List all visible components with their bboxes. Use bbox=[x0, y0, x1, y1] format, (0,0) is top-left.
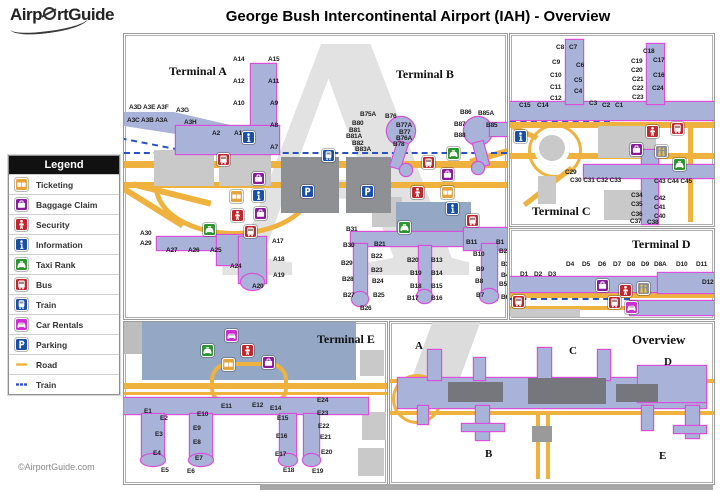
gate-label: A14 bbox=[233, 56, 245, 63]
gate-label: C17 bbox=[653, 57, 665, 64]
gate-label: C43 C44 C45 bbox=[654, 178, 692, 185]
gate-label: B11 bbox=[466, 239, 477, 246]
gate-label: A18 bbox=[273, 256, 285, 263]
gate-label: D4 bbox=[566, 261, 574, 268]
legend-item: Train bbox=[9, 374, 119, 394]
gate-label: D7 bbox=[613, 261, 621, 268]
gate-label: B25 bbox=[373, 292, 385, 299]
gate-label: D10 bbox=[676, 261, 688, 268]
gate-label: C24 bbox=[652, 85, 664, 92]
gate-label: D12 bbox=[702, 279, 714, 286]
bus-icon bbox=[608, 296, 621, 309]
terminal-pier bbox=[428, 350, 441, 380]
terminal-letter: D bbox=[664, 356, 672, 368]
terminal-junction bbox=[400, 164, 412, 176]
terminal-junction bbox=[417, 290, 432, 303]
road-icon bbox=[15, 358, 28, 371]
gate-label: D9 bbox=[641, 261, 649, 268]
gate-label: A17 bbox=[272, 238, 284, 245]
gate-label: B23 bbox=[371, 267, 383, 274]
road-segment bbox=[536, 413, 540, 479]
bus-icon bbox=[15, 278, 28, 291]
baggage-claim-icon bbox=[596, 279, 609, 292]
gate-label: C12 bbox=[550, 95, 562, 102]
gate-label: B87 bbox=[454, 121, 466, 128]
legend-item: Information bbox=[9, 234, 119, 254]
gate-label: B85 bbox=[486, 122, 498, 129]
security-icon bbox=[231, 209, 244, 222]
terminal-letter: C bbox=[569, 345, 577, 357]
building bbox=[360, 350, 384, 376]
terminal-shape bbox=[630, 301, 714, 315]
gate-label: E23 bbox=[317, 410, 328, 417]
gate-label: B10 bbox=[473, 251, 485, 258]
gate-label: B17 bbox=[407, 295, 419, 302]
taxi-icon bbox=[398, 221, 411, 234]
gate-label: B4 bbox=[501, 272, 508, 279]
bus-icon bbox=[671, 122, 684, 135]
legend-item: Train bbox=[9, 294, 119, 314]
gate-label: A8 bbox=[270, 122, 278, 129]
gate-label: C20 bbox=[631, 67, 643, 74]
gate-label: E4 bbox=[153, 450, 161, 457]
gate-label: B78 bbox=[393, 141, 405, 148]
ticketing-icon bbox=[441, 186, 454, 199]
gate-label: C6 bbox=[576, 62, 584, 69]
gate-label: B5 bbox=[499, 281, 507, 288]
legend-item-label: Bus bbox=[36, 280, 52, 290]
gate-label: A1 bbox=[234, 130, 242, 137]
terminal-building bbox=[448, 382, 503, 402]
security-icon bbox=[646, 125, 659, 138]
panel-terminal-e: Terminal E E1E2E3E4E5E6E7E8E9E10E11E12E1… bbox=[123, 321, 388, 485]
terminal-building bbox=[528, 378, 606, 404]
gate-label: E6 bbox=[187, 468, 195, 475]
panel-terminal-a-b: A bbox=[123, 33, 508, 320]
gate-label: A11 bbox=[268, 78, 279, 85]
gate-label: B27 bbox=[343, 292, 355, 299]
gate-label: E19 bbox=[312, 468, 323, 475]
gate-label: E10 bbox=[197, 411, 208, 418]
gate-label: C8 bbox=[556, 44, 564, 51]
gate-label: B21 bbox=[374, 241, 386, 248]
terminal-pier bbox=[538, 348, 551, 380]
legend-item: Taxi Rank bbox=[9, 254, 119, 274]
gate-label: D11 bbox=[696, 261, 707, 268]
gate-label: B83A bbox=[355, 146, 371, 153]
terminal-building bbox=[616, 384, 658, 402]
terminal-c-label: Terminal C bbox=[532, 204, 591, 219]
gate-label: D1 bbox=[520, 271, 528, 278]
gate-label: C7 bbox=[569, 44, 577, 51]
assistance-icon bbox=[655, 145, 668, 158]
train-line bbox=[510, 120, 610, 122]
legend-item-label: Parking bbox=[36, 340, 67, 350]
terminal-pier bbox=[462, 424, 504, 431]
car-rentals-icon bbox=[225, 329, 238, 342]
baggage-claim-icon bbox=[630, 143, 643, 156]
airportguide-logo: AirprtGuide bbox=[10, 5, 114, 25]
legend: Legend Ticketing Baggage Claim Security … bbox=[8, 155, 120, 395]
gate-label: C3 bbox=[589, 100, 597, 107]
gate-label: C35 bbox=[631, 201, 643, 208]
terminal-pier bbox=[476, 406, 489, 440]
building bbox=[358, 448, 384, 476]
legend-item: Baggage Claim bbox=[9, 194, 119, 214]
baggage-claim-icon bbox=[252, 172, 265, 185]
gate-label: B85A bbox=[478, 110, 494, 117]
taxi-icon bbox=[15, 258, 28, 271]
information-icon bbox=[252, 189, 265, 202]
gate-label: C34 bbox=[631, 192, 643, 199]
terminal-junction bbox=[472, 162, 484, 174]
legend-item: Bus bbox=[9, 274, 119, 294]
gate-label: B15 bbox=[431, 283, 443, 290]
gate-label: C15 bbox=[519, 102, 531, 109]
gate-label: D8 bbox=[627, 261, 635, 268]
ticketing-icon bbox=[15, 178, 28, 191]
building bbox=[362, 412, 386, 440]
gate-label: B18 bbox=[410, 283, 422, 290]
gate-label: A20 bbox=[252, 283, 264, 290]
gate-label: B6 bbox=[501, 294, 508, 301]
gate-label: B28 bbox=[342, 276, 354, 283]
gate-label: C18 bbox=[643, 48, 655, 55]
gate-label: B75A bbox=[360, 111, 376, 118]
information-icon bbox=[242, 131, 255, 144]
gate-label: D6 bbox=[598, 261, 606, 268]
security-icon bbox=[619, 284, 632, 297]
parking-icon bbox=[301, 185, 314, 198]
bus-icon bbox=[244, 225, 257, 238]
terminal-a-label: Terminal A bbox=[169, 64, 227, 79]
panel-terminal-c: Terminal C C8C7C9C6C10C5C11C4C12C15C14C3… bbox=[509, 33, 715, 227]
gate-label: B3 bbox=[501, 261, 508, 268]
security-icon bbox=[15, 218, 28, 231]
car-rentals-icon bbox=[625, 301, 638, 314]
legend-item: Security bbox=[9, 214, 119, 234]
panel-overview: Overview ACDBE bbox=[389, 321, 715, 485]
gate-label: C22 bbox=[632, 85, 644, 92]
gate-label: C2 bbox=[602, 102, 610, 109]
information-icon bbox=[446, 202, 459, 215]
gate-label: C14 bbox=[537, 102, 549, 109]
road-segment bbox=[546, 413, 550, 479]
terminal-pier bbox=[418, 406, 428, 424]
legend-item-label: Baggage Claim bbox=[36, 200, 97, 210]
terminal-letter: B bbox=[485, 448, 492, 460]
gate-label: D5 bbox=[582, 261, 590, 268]
gate-label: A9 bbox=[270, 100, 278, 107]
taxi-icon bbox=[201, 344, 214, 357]
gate-label: A7 bbox=[270, 144, 278, 151]
gate-label: A12 bbox=[233, 78, 245, 85]
gate-label: B30 bbox=[343, 242, 355, 249]
baggage-claim-icon bbox=[15, 198, 28, 211]
building bbox=[510, 309, 580, 317]
information-icon bbox=[15, 238, 28, 251]
bus-icon bbox=[512, 295, 525, 308]
gate-label: B86 bbox=[460, 109, 472, 116]
building bbox=[538, 176, 556, 204]
train-line-icon bbox=[15, 378, 28, 391]
parking-icon bbox=[15, 338, 28, 351]
terminal-shape bbox=[176, 126, 279, 154]
terminal-b-label: Terminal B bbox=[396, 67, 454, 82]
gate-label: C30 C31 C32 C33 bbox=[570, 177, 621, 184]
gate-label: A3G bbox=[176, 107, 189, 114]
gate-label: E2 bbox=[160, 415, 168, 422]
gate-label: A2 bbox=[212, 130, 220, 137]
gate-label: B19 bbox=[410, 270, 422, 277]
panel-terminal-d: Terminal D D1D2D3D4D5D6D7D8D9D8AD10D11D1… bbox=[509, 228, 715, 320]
gate-label: B24 bbox=[372, 278, 384, 285]
gate-label: E8 bbox=[193, 439, 201, 446]
roundabout-building bbox=[534, 130, 570, 166]
taxi-icon bbox=[447, 147, 460, 160]
terminal-d-label: Terminal D bbox=[632, 237, 691, 252]
gate-label: E20 bbox=[321, 449, 332, 456]
gate-label: C29 bbox=[565, 169, 577, 176]
terminal-pier bbox=[686, 406, 699, 438]
gate-label: D3 bbox=[548, 271, 556, 278]
legend-items: Ticketing Baggage Claim Security Informa… bbox=[9, 174, 119, 394]
gate-label: C16 bbox=[653, 72, 665, 79]
gate-label: E24 bbox=[317, 397, 328, 404]
car-rentals-icon bbox=[15, 318, 28, 331]
gate-label: E7 bbox=[195, 455, 203, 462]
train-icon bbox=[322, 149, 335, 162]
building bbox=[532, 426, 552, 442]
terminal-junction bbox=[303, 454, 320, 466]
legend-title: Legend bbox=[9, 156, 119, 174]
gate-label: E1 bbox=[144, 408, 152, 415]
gate-label: E22 bbox=[318, 423, 329, 430]
terminal-shape bbox=[124, 398, 368, 414]
gate-label: C4 bbox=[574, 88, 582, 95]
security-icon bbox=[411, 186, 424, 199]
gate-label: C11 bbox=[550, 84, 561, 91]
terminal-letter: E bbox=[659, 450, 666, 462]
gate-label: B7 bbox=[476, 292, 484, 299]
gate-label: A30 bbox=[140, 230, 152, 237]
assistance-icon bbox=[637, 282, 650, 295]
gate-label: C19 bbox=[631, 58, 643, 65]
gate-label: A27 bbox=[166, 247, 178, 254]
legend-item-label: Train bbox=[36, 380, 56, 390]
gate-label: E9 bbox=[193, 425, 201, 432]
ticketing-icon bbox=[230, 190, 243, 203]
gate-label: A15 bbox=[268, 56, 280, 63]
bus-icon bbox=[466, 214, 479, 227]
gate-label: A3H bbox=[184, 119, 197, 126]
gate-label: E12 bbox=[252, 402, 263, 409]
gate-label: C9 bbox=[552, 59, 560, 66]
bus-icon bbox=[422, 156, 435, 169]
gate-label: B8 bbox=[475, 278, 483, 285]
baggage-claim-icon bbox=[254, 207, 267, 220]
gate-label: E16 bbox=[276, 433, 287, 440]
legend-item: Car Rentals bbox=[9, 314, 119, 334]
gate-label: E3 bbox=[155, 431, 163, 438]
gate-label: A25 bbox=[210, 247, 222, 254]
gate-label: C42 bbox=[654, 195, 666, 202]
taxi-icon bbox=[203, 223, 216, 236]
legend-item-label: Road bbox=[36, 360, 57, 370]
gate-label: A24 bbox=[230, 263, 242, 270]
gate-label: B76 bbox=[385, 113, 397, 120]
legend-item: Road bbox=[9, 354, 119, 374]
gate-label: A10 bbox=[233, 100, 245, 107]
gate-label: C1 bbox=[615, 102, 623, 109]
gate-label: C21 bbox=[632, 76, 644, 83]
gate-label: E21 bbox=[320, 434, 331, 441]
gate-label: D2 bbox=[534, 271, 542, 278]
gate-label: B88 bbox=[454, 132, 466, 139]
security-icon bbox=[241, 344, 254, 357]
terminal-letter: A bbox=[415, 340, 423, 352]
gate-label: C5 bbox=[574, 77, 582, 84]
gate-label: B13 bbox=[431, 257, 443, 264]
parking-icon bbox=[361, 185, 374, 198]
legend-item-label: Ticketing bbox=[36, 180, 73, 190]
legend-item: Ticketing bbox=[9, 174, 119, 194]
overview-label: Overview bbox=[632, 332, 685, 348]
page-title: George Bush Intercontinental Airport (IA… bbox=[123, 8, 713, 25]
legend-item-label: Car Rentals bbox=[36, 320, 83, 330]
baggage-claim-icon bbox=[262, 356, 275, 369]
bus-icon bbox=[217, 153, 230, 166]
terminal-pier bbox=[598, 350, 610, 380]
legend-item: Parking bbox=[9, 334, 119, 354]
gate-label: E5 bbox=[161, 467, 169, 474]
gate-label: A3C A3B A3A bbox=[127, 117, 168, 124]
gate-label: B16 bbox=[431, 295, 443, 302]
gate-label: B9 bbox=[476, 266, 484, 273]
baggage-claim-icon bbox=[441, 168, 454, 181]
gate-label: B20 bbox=[407, 257, 419, 264]
gate-label: A19 bbox=[273, 272, 285, 279]
terminal-e-label: Terminal E bbox=[317, 332, 375, 347]
gate-label: D8A bbox=[654, 261, 667, 268]
gate-label: A29 bbox=[140, 240, 152, 247]
gate-label: A3D A3E A3F bbox=[129, 104, 169, 111]
terminal-pier bbox=[474, 358, 485, 380]
gate-label: B29 bbox=[341, 260, 353, 267]
gate-label: C37 bbox=[630, 218, 642, 225]
terminal-pier bbox=[674, 426, 706, 433]
gate-label: B31 bbox=[346, 226, 358, 233]
legend-item-label: Train bbox=[36, 300, 56, 310]
gate-label: E15 bbox=[277, 415, 288, 422]
gate-label: C38 bbox=[647, 219, 659, 226]
gate-label: E18 bbox=[283, 467, 294, 474]
gate-label: C10 bbox=[550, 72, 562, 79]
gate-label: E17 bbox=[275, 451, 286, 458]
copyright-text: ©AirportGuide.com bbox=[18, 462, 95, 472]
train-icon bbox=[15, 298, 28, 311]
taxi-icon bbox=[673, 158, 686, 171]
building bbox=[154, 150, 214, 186]
information-icon bbox=[514, 130, 527, 143]
gate-label: E14 bbox=[270, 405, 281, 412]
gate-label: B14 bbox=[431, 270, 443, 277]
ticketing-icon bbox=[222, 358, 235, 371]
legend-item-label: Security bbox=[36, 220, 70, 230]
gate-label: E11 bbox=[221, 403, 232, 410]
gate-label: C41 bbox=[654, 204, 666, 211]
gate-label: C23 bbox=[632, 94, 644, 101]
terminal-pier bbox=[642, 406, 653, 430]
gate-label: A26 bbox=[188, 247, 200, 254]
legend-item-label: Information bbox=[36, 240, 83, 250]
gate-label: B2 bbox=[499, 248, 507, 255]
airport-map-page: AirprtGuide George Bush Intercontinental… bbox=[0, 0, 720, 492]
gate-label: B22 bbox=[371, 253, 383, 260]
gate-label: B1 bbox=[496, 239, 504, 246]
panel-bottom-shadow bbox=[260, 484, 713, 490]
gate-label: B26 bbox=[360, 305, 372, 312]
legend-item-label: Taxi Rank bbox=[36, 260, 76, 270]
